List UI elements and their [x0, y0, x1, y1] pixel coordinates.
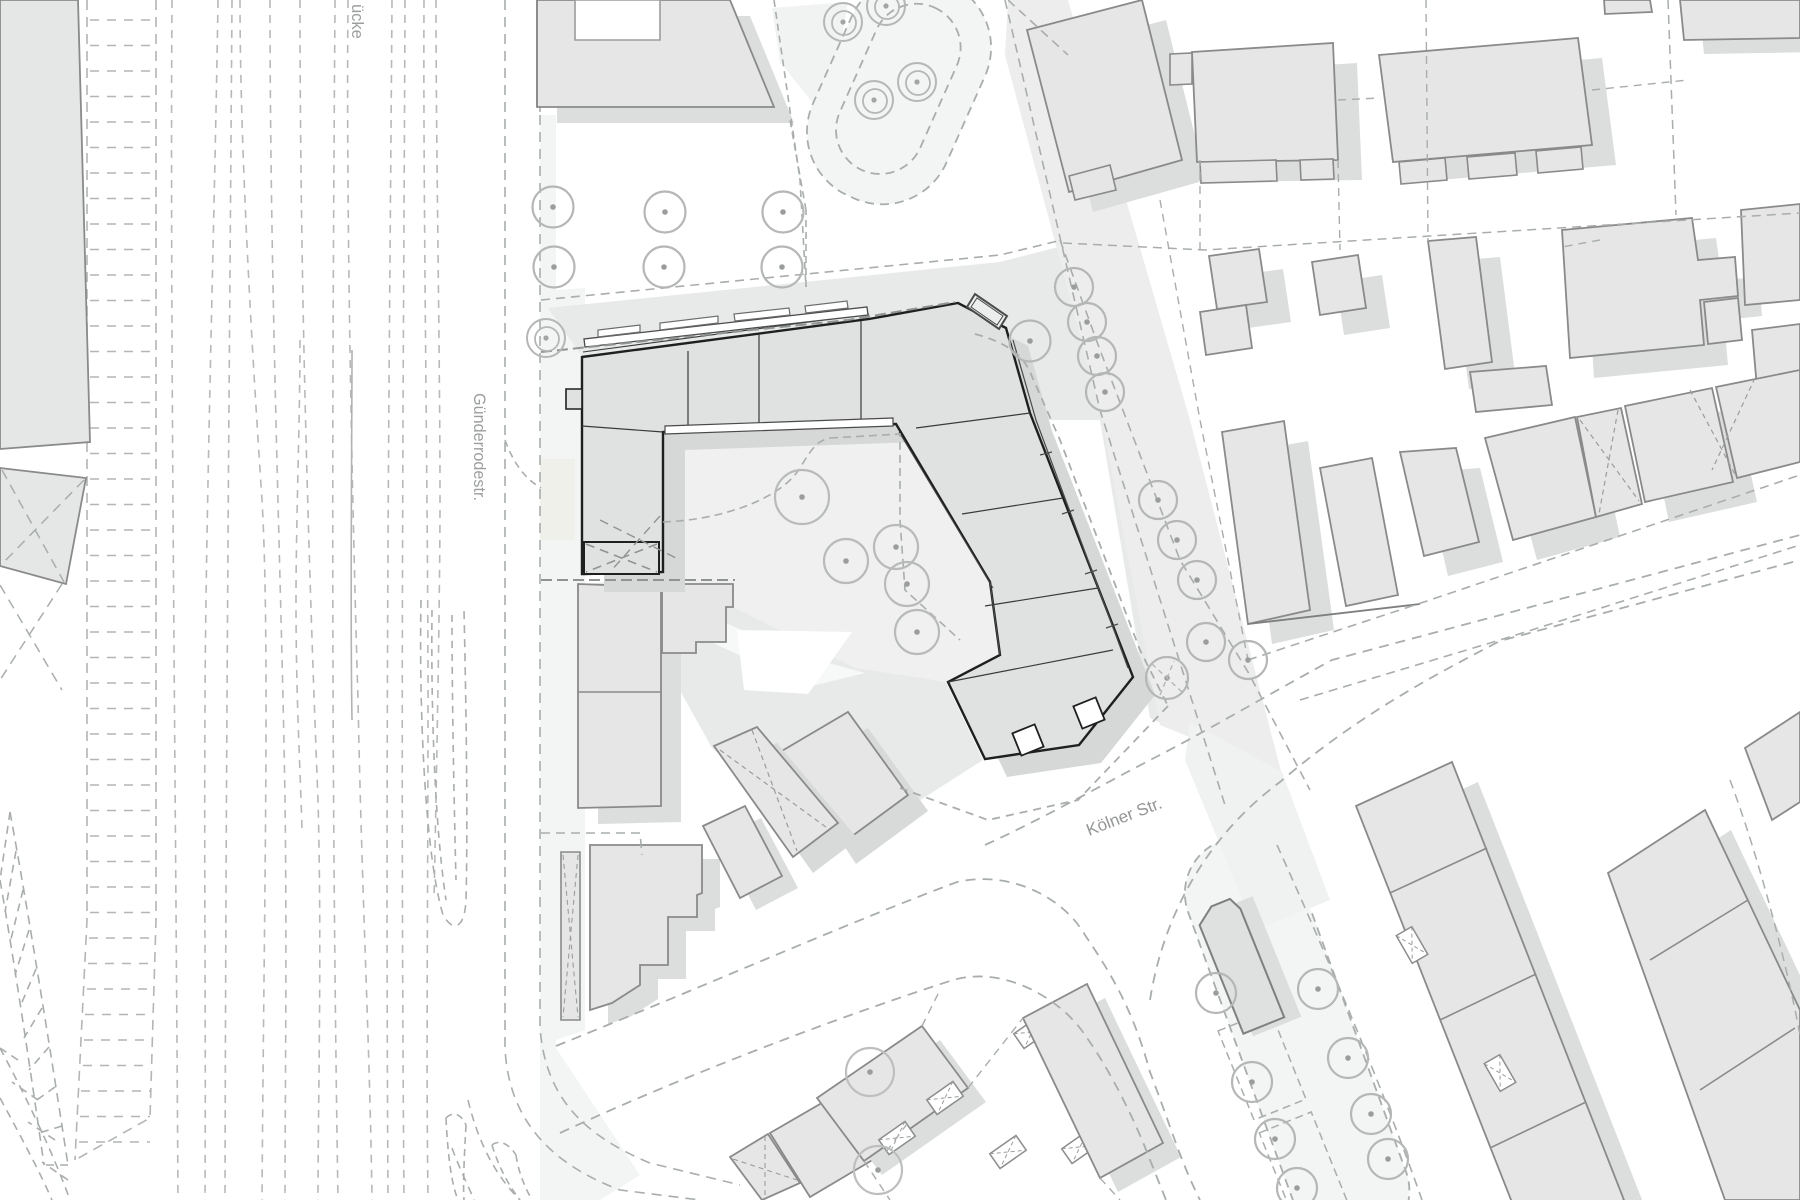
svg-text:Günderrodestr.: Günderrodestr. — [470, 393, 488, 501]
svg-text:ücke: ücke — [348, 4, 366, 39]
